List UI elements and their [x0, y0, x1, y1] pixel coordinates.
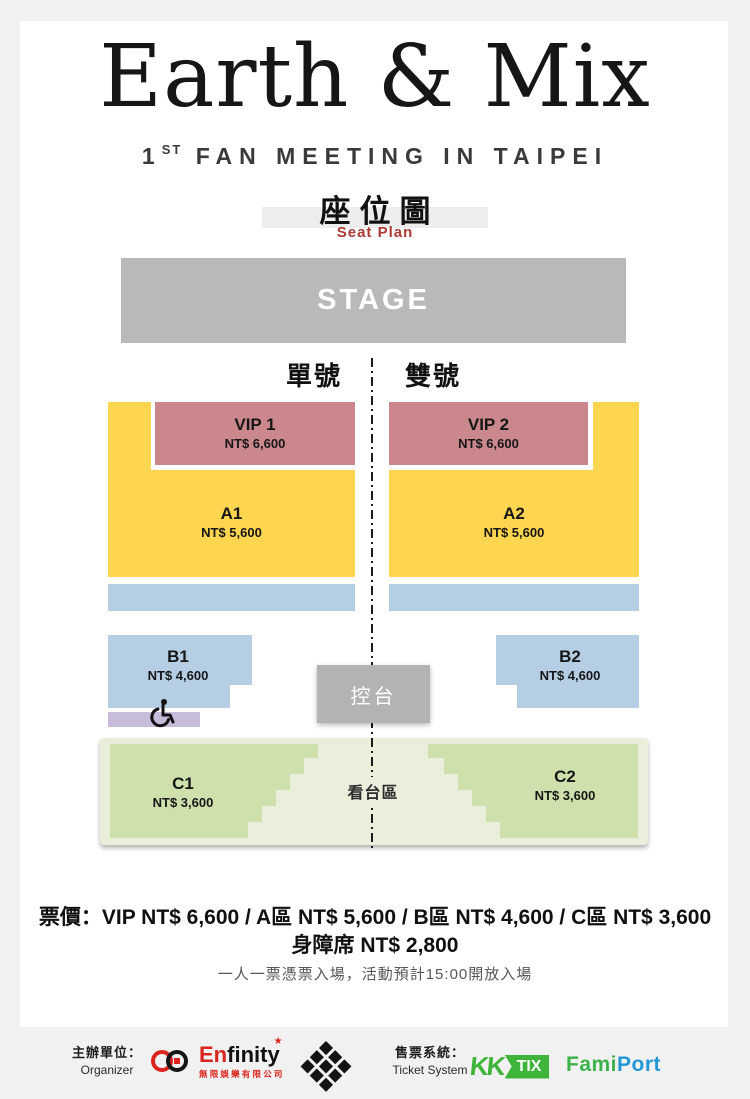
- kktix-kk-text: KK: [468, 1051, 505, 1082]
- organizer-label-en: Organizer: [62, 1062, 152, 1078]
- control-booth-block: 控台: [317, 665, 430, 723]
- ticket-system-label-en: Ticket System: [380, 1062, 480, 1078]
- a2-price: NT$ 5,600: [389, 525, 639, 542]
- section-a1-wing: [108, 402, 151, 472]
- vip2-name: VIP 2: [389, 414, 588, 436]
- a2-label: A2 NT$ 5,600: [389, 503, 639, 542]
- subtitle-number: 1: [142, 143, 162, 169]
- seat-plan-title-en: Seat Plan: [0, 224, 750, 241]
- famiport-logo: FamiPort: [566, 1053, 661, 1077]
- vip1-price: NT$ 6,600: [155, 436, 355, 453]
- control-booth-label: 控台: [351, 680, 397, 709]
- admission-note: 一人一票憑票入場，活動預計15:00開放入場: [0, 963, 750, 984]
- organizer-label-zh: 主辦單位：: [62, 1044, 152, 1062]
- enfinity-name-prefix: En: [199, 1042, 227, 1067]
- enfinity-wordmark: Enfinity ★ 無限娛樂有限公司: [199, 1044, 285, 1079]
- odd-side-label: 單號: [286, 356, 342, 393]
- diamond-pattern-logo-icon: [295, 1038, 357, 1094]
- ticket-system-label-zh: 售票系統：: [380, 1044, 480, 1062]
- c2-name: C2: [500, 766, 630, 788]
- c2-price: NT$ 3,600: [500, 788, 630, 805]
- b2-label: B2 NT$ 4,600: [500, 646, 640, 685]
- b2-name: B2: [500, 646, 640, 668]
- vip2-label: VIP 2 NT$ 6,600: [389, 414, 588, 453]
- stand-area-label: 看台區: [342, 777, 403, 805]
- c1-label: C1 NT$ 3,600: [118, 773, 248, 812]
- kktix-tix-ticket: TIX: [505, 1055, 550, 1079]
- c1-name: C1: [118, 773, 248, 795]
- wheelchair-icon: [146, 697, 178, 729]
- even-side-label: 雙號: [405, 356, 461, 393]
- famiport-green-text: Fami: [566, 1053, 617, 1076]
- enfinity-company-zh: 無限娛樂有限公司: [199, 1070, 285, 1079]
- ticket-system-label: 售票系統： Ticket System: [380, 1044, 480, 1078]
- stage-label: STAGE: [317, 284, 430, 317]
- enfinity-star-icon: ★: [274, 1037, 283, 1047]
- enfinity-name-suffix: finity: [227, 1042, 280, 1067]
- a2-name: A2: [389, 503, 639, 525]
- a1-name: A1: [108, 503, 355, 525]
- b1-name: B1: [108, 646, 248, 668]
- stage-block: STAGE: [121, 258, 626, 343]
- c2-label: C2 NT$ 3,600: [500, 766, 630, 805]
- vip2-price: NT$ 6,600: [389, 436, 588, 453]
- subtitle-ordinal: ST: [162, 142, 183, 157]
- organizer-label: 主辦單位： Organizer: [62, 1044, 152, 1078]
- vip1-label: VIP 1 NT$ 6,600: [155, 414, 355, 453]
- event-title: Earth & Mix: [0, 30, 750, 125]
- famiport-blue-text: Port: [617, 1053, 661, 1076]
- enfinity-mark-icon: [148, 1041, 194, 1081]
- a1-price: NT$ 5,600: [108, 525, 355, 542]
- section-a2-wing: [593, 402, 639, 472]
- b2-price: NT$ 4,600: [500, 668, 640, 685]
- center-divider-dashed-line: [371, 358, 373, 848]
- section-b1-front-row: [108, 584, 355, 611]
- a1-label: A1 NT$ 5,600: [108, 503, 355, 542]
- section-b2-front-row: [389, 584, 639, 611]
- price-accessible: 身障席 NT$ 2,800: [0, 929, 750, 959]
- event-subtitle: 1ST FAN MEETING IN TAIPEI: [0, 142, 750, 170]
- subtitle-text: FAN MEETING IN TAIPEI: [196, 143, 608, 169]
- enfinity-logo: Enfinity ★ 無限娛樂有限公司: [148, 1041, 285, 1081]
- kktix-logo: KK TIX: [470, 1051, 549, 1082]
- b1-label: B1 NT$ 4,600: [108, 646, 248, 685]
- price-summary: 票價：VIP NT$ 6,600 / A區 NT$ 5,600 / B區 NT$…: [0, 901, 750, 931]
- b1-price: NT$ 4,600: [108, 668, 248, 685]
- c1-price: NT$ 3,600: [118, 795, 248, 812]
- vip1-name: VIP 1: [155, 414, 355, 436]
